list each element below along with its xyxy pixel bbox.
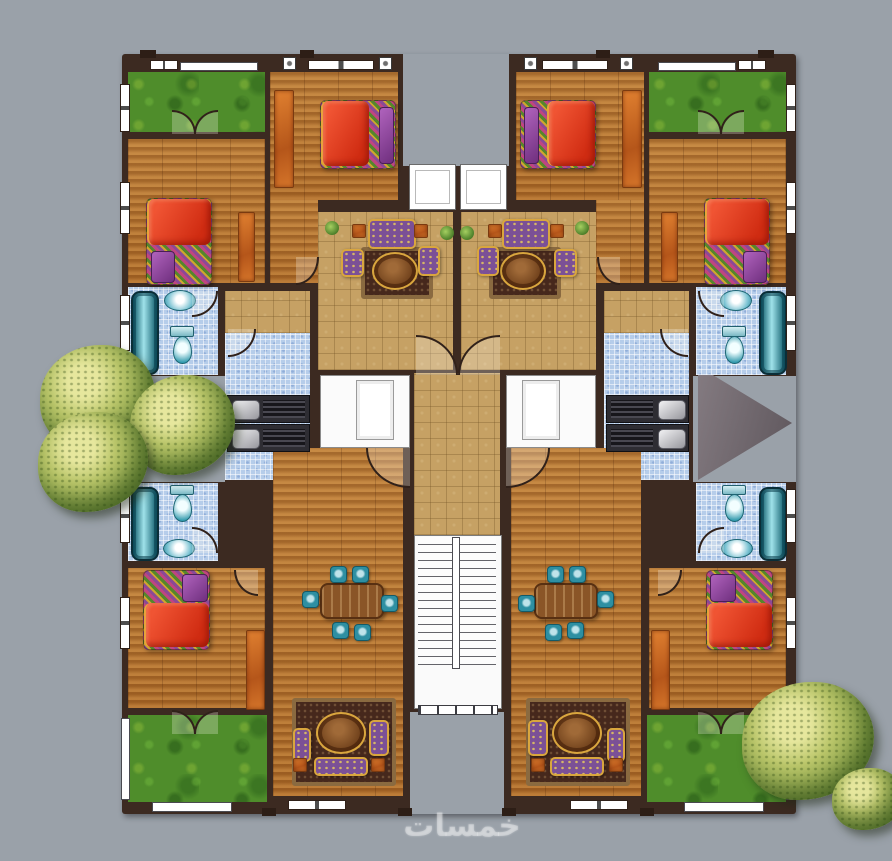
bathtub — [131, 487, 159, 561]
staircase-center-rail — [452, 537, 460, 669]
potted-plant — [575, 221, 589, 235]
bed-lower-right — [706, 570, 773, 650]
dining-chair — [547, 566, 564, 583]
round-table-lower-right — [552, 712, 602, 754]
bed-blanket — [321, 101, 369, 166]
kitchen-counter — [227, 424, 310, 452]
bed-blanket — [147, 199, 211, 245]
corner-pouf — [371, 758, 385, 772]
window — [786, 295, 796, 351]
side-table — [550, 224, 564, 238]
bed-blanket — [707, 603, 772, 647]
corridor — [414, 373, 500, 535]
kitchen-counter — [606, 424, 689, 452]
floor-cushion — [314, 757, 368, 776]
corner-pouf — [531, 758, 545, 772]
wash-basin — [721, 539, 753, 558]
bed-pillow — [710, 574, 736, 602]
window — [738, 60, 766, 70]
closet-left-inner — [356, 380, 394, 440]
bed-blanket — [144, 603, 209, 647]
bed-pillow — [524, 107, 539, 164]
round-table-lower-left — [316, 712, 366, 754]
dining-chair — [545, 624, 562, 641]
bed-upper-left-2 — [320, 100, 396, 169]
sofa-left — [368, 219, 416, 249]
bed-upper-right-1 — [704, 198, 770, 285]
side-table — [352, 224, 366, 238]
bed-pillow — [182, 574, 208, 602]
kitchen-sink — [232, 400, 260, 420]
kitchen-counter — [606, 395, 689, 423]
window — [308, 60, 374, 70]
side-table — [414, 224, 428, 238]
coffee-table-right — [500, 252, 546, 290]
bed-lower-left — [143, 570, 210, 650]
dining-chair — [597, 591, 614, 608]
bush-bottom-right-small — [832, 768, 892, 830]
counter-ridges — [611, 429, 653, 447]
wall-vent — [620, 57, 633, 70]
wall-vent — [524, 57, 537, 70]
window — [786, 84, 796, 132]
side-table — [488, 224, 502, 238]
wall-vent — [379, 57, 392, 70]
wall-vent — [283, 57, 296, 70]
toilet-bowl — [173, 336, 192, 364]
dining-table-left — [320, 583, 384, 619]
potted-plant — [325, 221, 339, 235]
rear-courtyard-pavers — [410, 712, 504, 814]
window — [786, 489, 796, 543]
window — [120, 84, 130, 132]
window — [120, 295, 130, 351]
hall-upper-right — [604, 291, 689, 333]
wall-pillar — [758, 50, 774, 58]
wardrobe-orange — [238, 212, 255, 282]
toilet-bowl — [725, 494, 744, 522]
dining-chair — [302, 591, 319, 608]
counter-ridges — [611, 400, 653, 418]
potted-plant — [460, 226, 474, 240]
wall-pillar — [262, 808, 276, 816]
armchair — [477, 246, 499, 276]
bed-blanket — [547, 101, 595, 166]
dining-chair — [518, 595, 535, 612]
counter-ridges — [263, 400, 305, 418]
wall-pillar — [140, 50, 156, 58]
wall-pillar — [596, 50, 610, 58]
dining-table-right — [534, 583, 598, 619]
dining-chair — [381, 595, 398, 612]
bathtub — [759, 291, 787, 375]
armchair — [341, 249, 364, 277]
wall-pillar — [640, 808, 654, 816]
window — [570, 800, 628, 810]
coffee-table-left — [372, 252, 418, 290]
window — [542, 60, 608, 70]
closet-right-inner — [522, 380, 560, 440]
hall-upper-left — [225, 291, 310, 333]
kitchen-sink — [658, 429, 686, 449]
garden-railing — [684, 802, 764, 812]
toilet-bowl — [173, 494, 192, 522]
bed-pillow — [379, 107, 394, 164]
floor-cushion — [293, 728, 311, 762]
balcony-railing — [658, 62, 736, 71]
wardrobe-orange — [661, 212, 678, 282]
floor-cushion — [607, 728, 625, 762]
wash-basin — [163, 539, 195, 558]
window — [120, 182, 130, 234]
window — [786, 182, 796, 234]
bed-blanket — [705, 199, 769, 245]
bed-upper-right-2 — [520, 100, 596, 169]
potted-plant — [440, 226, 454, 240]
bed-pillow — [151, 251, 175, 283]
armchair — [554, 249, 577, 277]
corner-pouf — [293, 758, 307, 772]
wardrobe-orange — [274, 90, 294, 188]
bathtub — [759, 487, 787, 561]
sofa-right — [502, 219, 550, 249]
window — [288, 800, 346, 810]
floor-cushion — [369, 720, 389, 756]
counter-ridges — [263, 429, 305, 447]
courtyard-railing — [418, 705, 498, 715]
dining-chair — [354, 624, 371, 641]
window — [786, 597, 796, 649]
floor-cushion — [550, 757, 604, 776]
wardrobe-orange — [651, 630, 670, 710]
kitchen-counter — [227, 395, 310, 423]
corner-pouf — [609, 758, 623, 772]
floor-plan-canvas: خمسات — [0, 0, 892, 861]
wardrobe-orange — [246, 630, 265, 710]
dining-chair — [567, 622, 584, 639]
kitchen-sink — [232, 429, 260, 449]
wardrobe-orange — [622, 90, 642, 188]
wall-pillar — [300, 50, 314, 58]
dining-chair — [569, 566, 586, 583]
dining-chair — [332, 622, 349, 639]
bed-pillow — [743, 251, 767, 283]
floor-cushion — [528, 720, 548, 756]
wash-basin — [720, 290, 752, 311]
entry-recess-pavers — [403, 54, 509, 166]
garden-railing — [121, 718, 130, 800]
bed-upper-left-1 — [146, 198, 212, 285]
entry-box-left — [409, 164, 456, 210]
window — [150, 60, 178, 70]
balcony-railing — [180, 62, 258, 71]
armchair — [418, 246, 440, 276]
window — [120, 597, 130, 649]
dining-chair — [352, 566, 369, 583]
kitchen-sink — [658, 400, 686, 420]
entry-box-right — [460, 164, 507, 210]
garden-railing — [152, 802, 232, 812]
dining-chair — [330, 566, 347, 583]
watermark-text: خمسات — [372, 808, 552, 852]
toilet-bowl — [725, 336, 744, 364]
